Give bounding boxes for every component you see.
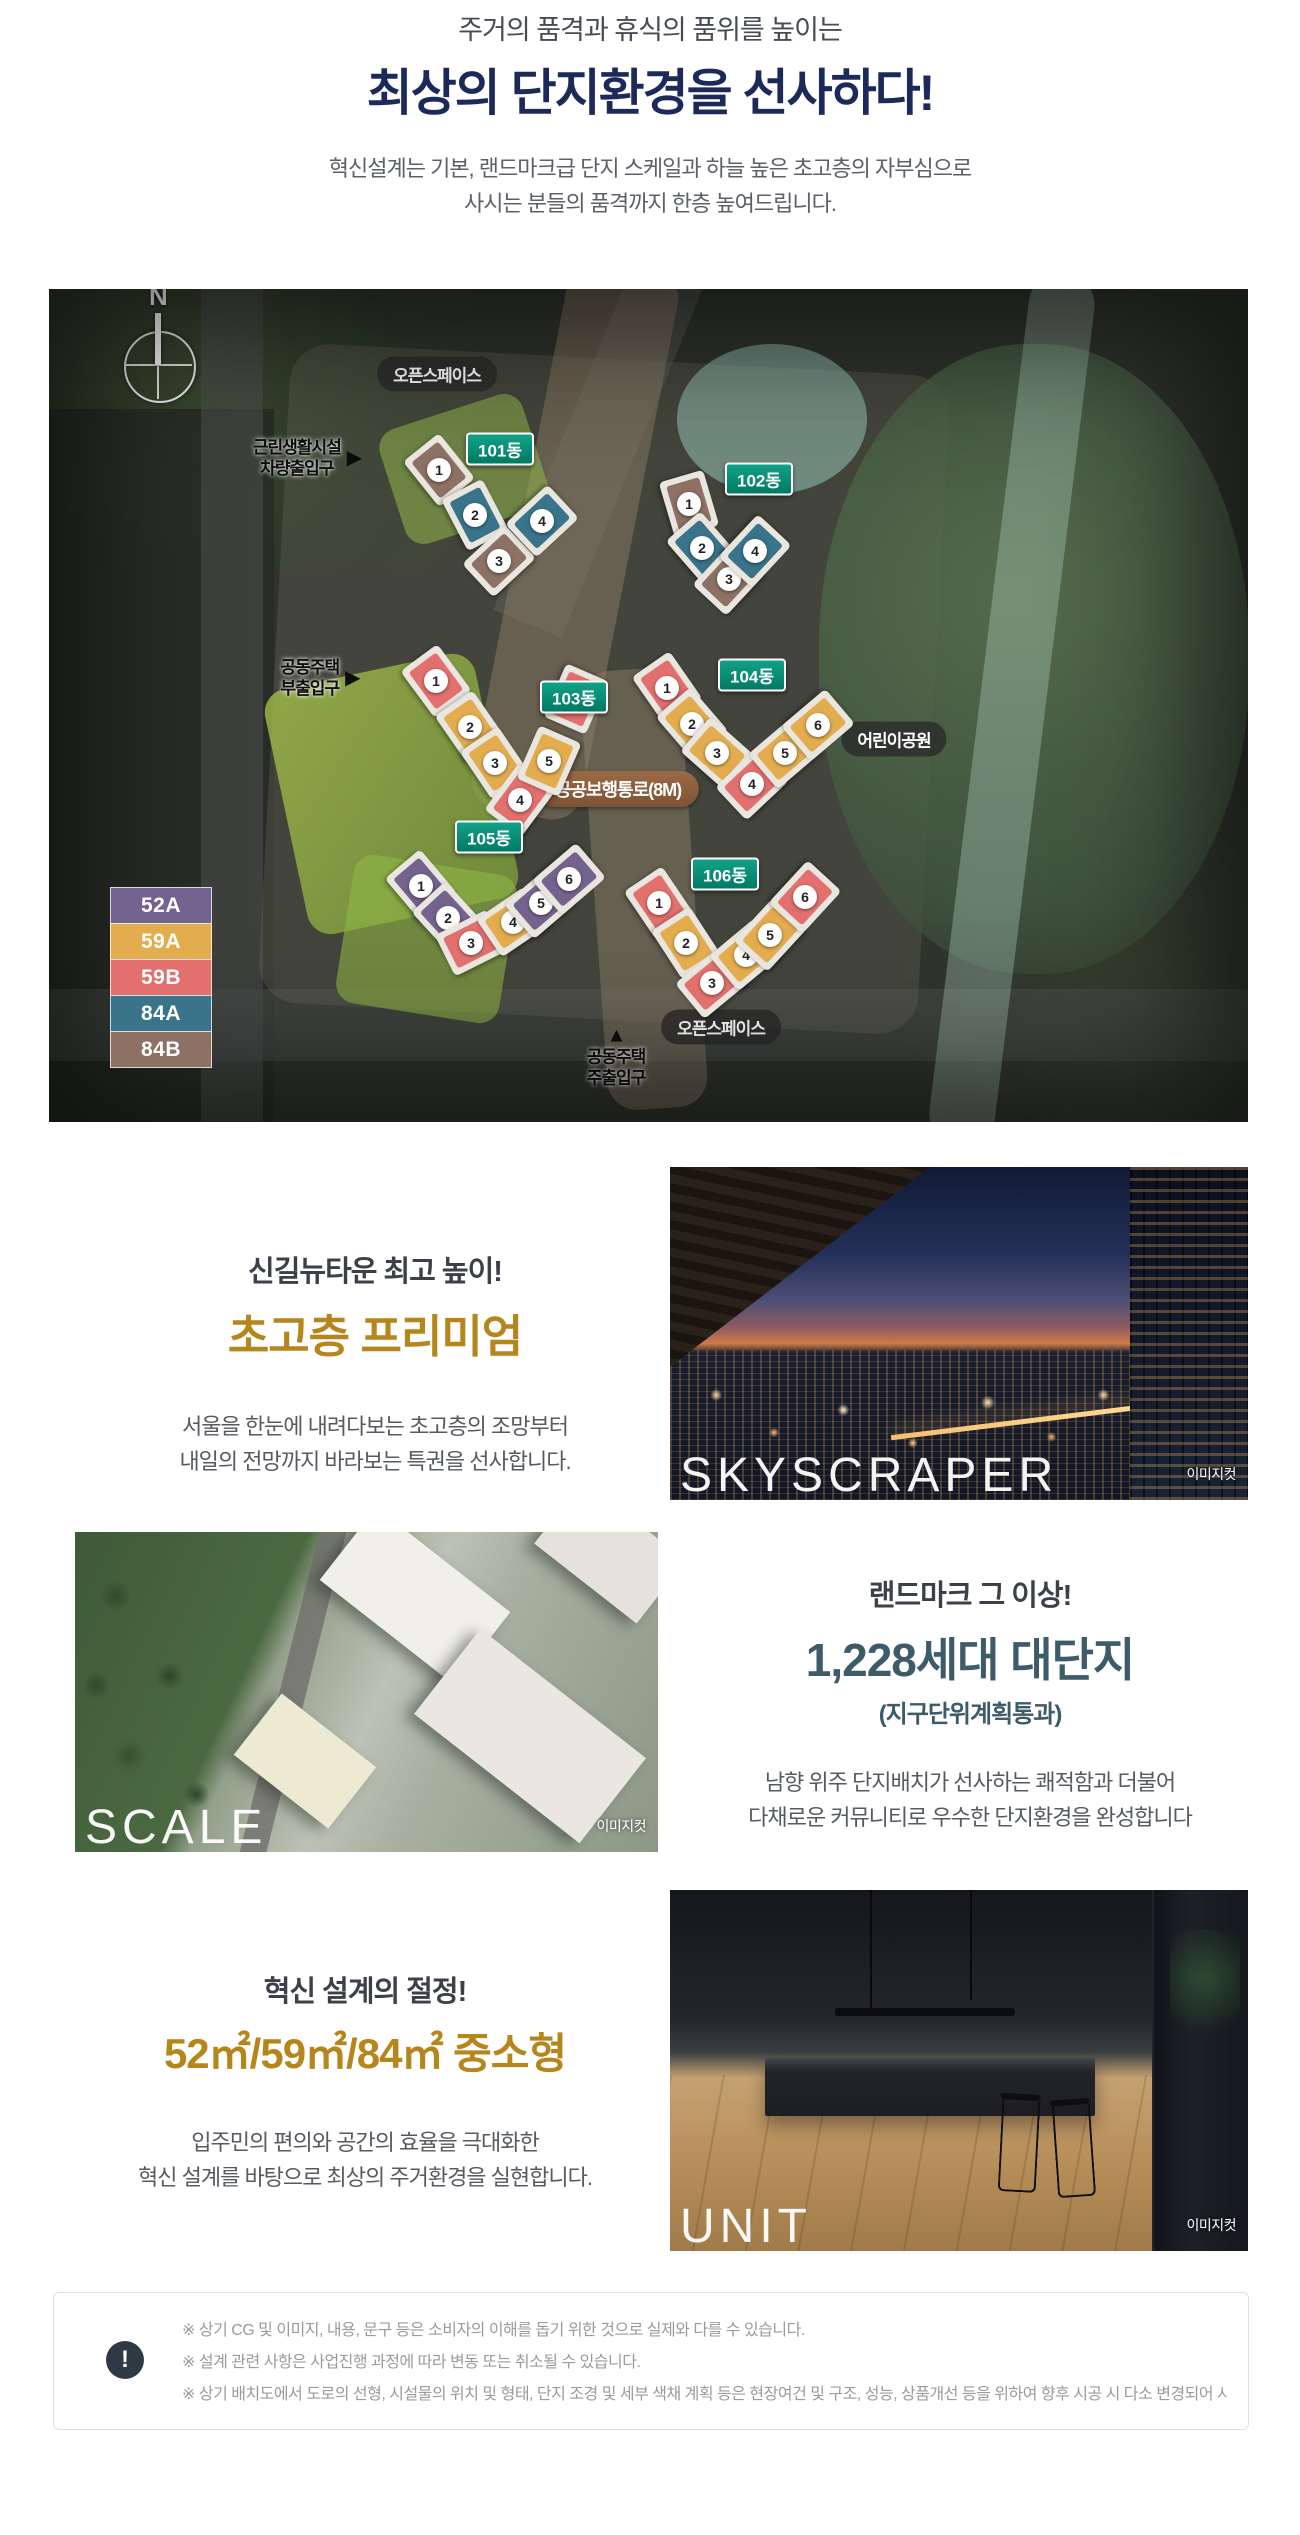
pendant-light-graphic <box>870 1890 872 2010</box>
stool-graphic <box>1052 2104 1096 2198</box>
unit-eyebrow: 혁신 설계의 절정! <box>130 1968 600 2010</box>
skyscraper-title: 초고층 프리미엄 <box>150 1300 600 1365</box>
skyscraper-description: 서울을 한눈에 내려다보는 초고층의 조망부터 내일의 전망까지 바라보는 특권… <box>150 1409 600 1479</box>
legend-item-59B: 59B <box>110 959 212 996</box>
image-cut-badge: 이미지컷 <box>1186 1464 1236 1484</box>
kitchen-island-graphic <box>765 2058 1095 2116</box>
building-label-101동: 101동 <box>466 433 534 466</box>
legend-item-84B: 84B <box>110 1031 212 1068</box>
stool-graphic <box>998 2099 1041 2193</box>
legend-item-84A: 84A <box>110 995 212 1032</box>
skyscraper-overlay-word: SKYSCRAPER <box>680 1452 1058 1500</box>
disclaimer-line: ※ 설계 관련 사항은 사업진행 과정에 따라 변동 또는 취소될 수 있습니다… <box>182 2347 1228 2379</box>
disclaimer-lines: ※ 상기 CG 및 이미지, 내용, 문구 등은 소비자의 이해를 돕기 위한 … <box>182 2315 1228 2411</box>
section-skyscraper-text: 신길뉴타운 최고 높이! 초고층 프리미엄 서울을 한눈에 내려다보는 초고층의… <box>150 1248 600 1479</box>
page: 주거의 품격과 휴식의 품위를 높이는 최상의 단지환경을 선사하다! 혁신설계… <box>0 0 1300 2535</box>
building-roof-graphic <box>534 1532 658 1624</box>
unit-description: 입주민의 편의와 공간의 효율을 극대화한 혁신 설계를 바탕으로 최상의 주거… <box>130 2125 600 2195</box>
skyscraper-desc-line2: 내일의 전망까지 바라보는 특권을 선사합니다. <box>150 1444 600 1479</box>
header-description-line1: 혁신설계는 기본, 랜드마크급 단지 스케일과 하늘 높은 초고층의 자부심으로 <box>0 151 1300 186</box>
section-unit-text: 혁신 설계의 절정! 52㎡/59㎡/84㎡ 중소형 입주민의 편의와 공간의 … <box>130 1968 600 2195</box>
skyscraper-photo: SKYSCRAPER 이미지컷 <box>670 1167 1248 1500</box>
unit-desc-line2: 혁신 설계를 바탕으로 최상의 주거환경을 실현합니다. <box>130 2160 600 2195</box>
page-header: 주거의 품격과 휴식의 품위를 높이는 최상의 단지환경을 선사하다! 혁신설계… <box>0 0 1300 221</box>
disclaimer-box: ! ※ 상기 CG 및 이미지, 내용, 문구 등은 소비자의 이해를 돕기 위… <box>53 2292 1249 2430</box>
pendant-light-graphic <box>835 2008 1015 2016</box>
header-description: 혁신설계는 기본, 랜드마크급 단지 스케일과 하늘 높은 초고층의 자부심으로… <box>0 151 1300 221</box>
unit-title: 52㎡/59㎡/84㎡ 중소형 <box>130 2020 600 2081</box>
page-title: 최상의 단지환경을 선사하다! <box>0 53 1300 125</box>
scale-desc-line2: 다채로운 커뮤니티로 우수한 단지환경을 완성합니다 <box>710 1800 1230 1835</box>
legend-item-52A: 52A <box>110 887 212 924</box>
siteplan-map: N 오픈스페이스 근린생활시설 차량출입구 ▶ 공동주택 부출입구 ▶ 공공보행… <box>49 289 1248 1122</box>
unit-desc-line1: 입주민의 편의와 공간의 효율을 극대화한 <box>130 2125 600 2160</box>
map-vignette <box>49 289 1248 1122</box>
scale-eyebrow: 랜드마크 그 이상! <box>710 1572 1230 1614</box>
disclaimer-line: ※ 상기 배치도에서 도로의 선형, 시설물의 위치 및 형태, 단지 조경 및… <box>182 2379 1228 2411</box>
tower-graphic <box>1130 1167 1248 1500</box>
scale-overlay-word: SCALE <box>85 1804 267 1852</box>
image-cut-badge: 이미지컷 <box>1186 2215 1236 2235</box>
building-label-106동: 106동 <box>691 858 759 891</box>
unit-photo: UNIT 이미지컷 <box>670 1890 1248 2251</box>
scale-desc-line1: 남향 위주 단지배치가 선사하는 쾌적함과 더불어 <box>710 1765 1230 1800</box>
building-label-105동: 105동 <box>455 821 523 854</box>
legend-item-59A: 59A <box>110 923 212 960</box>
scale-title: 1,228세대 대단지 <box>710 1624 1230 1690</box>
scale-subtitle: (지구단위계획통과) <box>710 1694 1230 1729</box>
plant-graphic <box>1170 1930 1240 2050</box>
building-label-103동: 103동 <box>540 681 608 714</box>
header-description-line2: 사시는 분들의 품격까지 한층 높여드립니다. <box>0 186 1300 221</box>
pendant-light-graphic <box>970 1890 972 2000</box>
exclamation-icon: ! <box>106 2341 144 2379</box>
ceiling-graphic <box>670 1167 930 1367</box>
image-cut-badge: 이미지컷 <box>596 1816 646 1836</box>
scale-description: 남향 위주 단지배치가 선사하는 쾌적함과 더불어 다채로운 커뮤니티로 우수한… <box>710 1765 1230 1835</box>
skyscraper-eyebrow: 신길뉴타운 최고 높이! <box>150 1248 600 1290</box>
unit-overlay-word: UNIT <box>680 2203 812 2251</box>
skyscraper-desc-line1: 서울을 한눈에 내려다보는 초고층의 조망부터 <box>150 1409 600 1444</box>
scale-photo: SCALE 이미지컷 <box>75 1532 658 1852</box>
unit-type-legend: 52A59A59B84A84B <box>110 888 212 1068</box>
building-label-104동: 104동 <box>718 659 786 692</box>
building-label-102동: 102동 <box>725 463 793 496</box>
disclaimer-line: ※ 상기 CG 및 이미지, 내용, 문구 등은 소비자의 이해를 돕기 위한 … <box>182 2315 1228 2347</box>
header-eyebrow: 주거의 품격과 휴식의 품위를 높이는 <box>0 8 1300 47</box>
section-scale-text: 랜드마크 그 이상! 1,228세대 대단지 (지구단위계획통과) 남향 위주 … <box>710 1572 1230 1835</box>
